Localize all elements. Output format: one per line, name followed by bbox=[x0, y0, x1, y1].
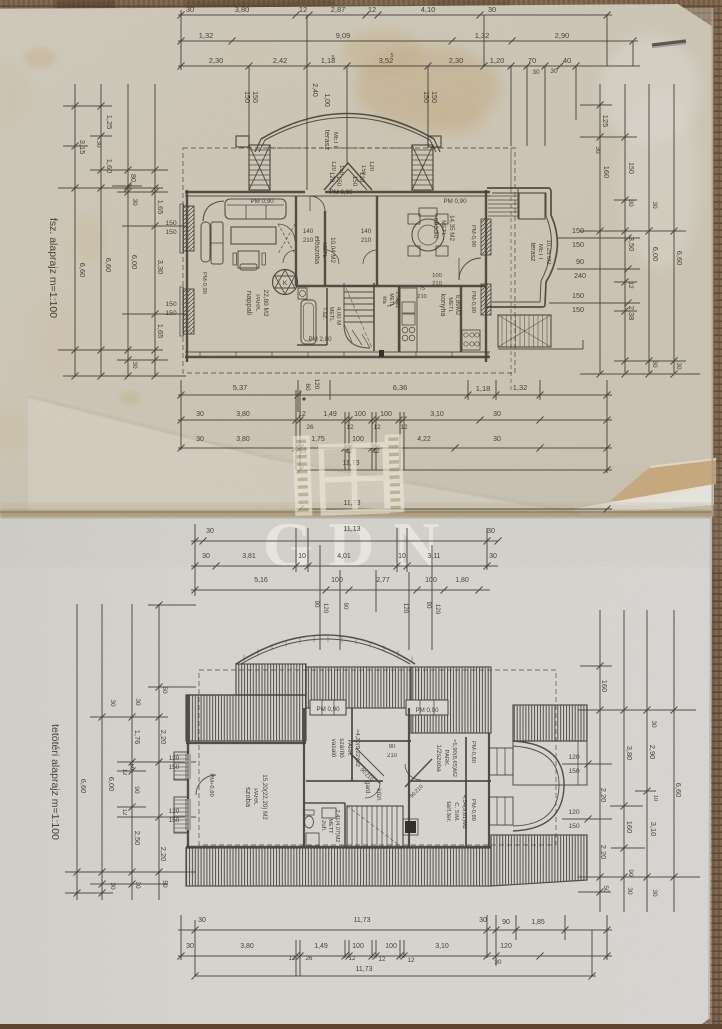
svg-text:1,00: 1,00 bbox=[323, 93, 330, 107]
svg-text:D: D bbox=[328, 509, 374, 580]
svg-text:30: 30 bbox=[198, 917, 206, 924]
svg-text:4,10: 4,10 bbox=[421, 5, 436, 14]
svg-text:METT: METT bbox=[537, 244, 543, 261]
svg-text:2,50: 2,50 bbox=[133, 831, 142, 846]
svg-text:75: 75 bbox=[419, 286, 425, 292]
svg-text:3,30: 3,30 bbox=[156, 260, 165, 275]
svg-text:C. SíM.: C. SíM. bbox=[453, 802, 459, 822]
svg-text:METL: METL bbox=[440, 220, 446, 236]
svg-text:30: 30 bbox=[650, 720, 657, 728]
svg-text:11,73: 11,73 bbox=[354, 917, 371, 924]
svg-text:tart.ter.: tart.ter. bbox=[445, 801, 452, 822]
svg-text:1,20: 1,20 bbox=[490, 56, 505, 65]
svg-text:szárító: szárító bbox=[338, 738, 345, 758]
svg-text:METL: METL bbox=[328, 307, 334, 322]
svg-text:PM-0,80: PM-0,80 bbox=[470, 741, 476, 763]
svg-text:terasz: terasz bbox=[529, 242, 536, 262]
svg-text:PM 2,00: PM 2,00 bbox=[308, 336, 332, 343]
svg-text:PM 0,90: PM 0,90 bbox=[329, 189, 353, 196]
svg-text:210: 210 bbox=[303, 237, 314, 244]
svg-text:1,60: 1,60 bbox=[105, 159, 114, 174]
svg-text:3,10: 3,10 bbox=[435, 943, 449, 950]
svg-text:5,16: 5,16 bbox=[254, 577, 268, 584]
svg-text:150: 150 bbox=[251, 91, 258, 103]
svg-text:120: 120 bbox=[402, 603, 409, 614]
svg-text:K: K bbox=[283, 280, 288, 287]
svg-text:METL: METL bbox=[447, 297, 453, 313]
svg-text:30: 30 bbox=[109, 699, 116, 707]
svg-text:3,15: 3,15 bbox=[78, 140, 87, 155]
svg-text:30: 30 bbox=[675, 362, 682, 370]
svg-text:40: 40 bbox=[563, 56, 571, 65]
svg-text:2,30: 2,30 bbox=[449, 56, 464, 65]
svg-text:f.sz.: f.sz. bbox=[321, 308, 328, 320]
svg-text:2,87: 2,87 bbox=[331, 5, 346, 14]
svg-text:100: 100 bbox=[331, 577, 343, 584]
svg-text:kfa: kfa bbox=[381, 296, 387, 304]
svg-text:tetötéri alaprajz m=1:100: tetötéri alaprajz m=1:100 bbox=[49, 724, 61, 840]
svg-text:közl.: közl. bbox=[375, 788, 382, 802]
svg-text:1,49: 1,49 bbox=[314, 943, 328, 950]
svg-text:PARK.: PARK. bbox=[254, 294, 260, 312]
svg-text:3,80: 3,80 bbox=[236, 411, 250, 418]
svg-text:3,10: 3,10 bbox=[649, 822, 658, 837]
svg-text:1,76: 1,76 bbox=[133, 730, 142, 745]
svg-text:2,40: 2,40 bbox=[311, 83, 318, 97]
svg-text:90: 90 bbox=[627, 869, 634, 877]
svg-text:50: 50 bbox=[161, 686, 168, 694]
svg-text:gard.: gard. bbox=[364, 781, 371, 795]
svg-text:12: 12 bbox=[627, 281, 634, 289]
svg-text:terasz: terasz bbox=[323, 130, 332, 151]
svg-text:100: 100 bbox=[352, 436, 364, 443]
svg-text:210: 210 bbox=[361, 237, 372, 244]
svg-text:6,00: 6,00 bbox=[130, 255, 139, 270]
svg-text:4,22: 4,22 bbox=[417, 436, 431, 443]
svg-text:90: 90 bbox=[502, 919, 510, 926]
svg-text:120: 120 bbox=[313, 379, 320, 390]
svg-text:PM 0,90: PM 0,90 bbox=[415, 707, 439, 714]
svg-text:100: 100 bbox=[432, 273, 442, 279]
svg-text:12: 12 bbox=[373, 424, 381, 431]
svg-text:26: 26 bbox=[306, 955, 313, 962]
svg-text:100: 100 bbox=[354, 411, 366, 418]
svg-text:11,73: 11,73 bbox=[344, 500, 361, 507]
svg-text:150: 150 bbox=[572, 305, 584, 314]
svg-text:120: 120 bbox=[500, 943, 512, 950]
svg-text:30: 30 bbox=[651, 360, 658, 368]
svg-text:90: 90 bbox=[389, 744, 396, 750]
svg-text:120: 120 bbox=[330, 161, 336, 172]
svg-text:30: 30 bbox=[488, 5, 496, 14]
svg-text:2,90: 2,90 bbox=[648, 745, 657, 760]
svg-text:1,18: 1,18 bbox=[476, 384, 491, 393]
svg-text:210: 210 bbox=[387, 753, 398, 759]
svg-text:2,20: 2,20 bbox=[159, 730, 168, 745]
svg-text:12: 12 bbox=[299, 5, 307, 14]
svg-text:30: 30 bbox=[109, 882, 116, 890]
svg-text:90: 90 bbox=[133, 786, 140, 794]
svg-text:22,80 M2: 22,80 M2 bbox=[262, 289, 269, 316]
svg-text:26: 26 bbox=[306, 424, 314, 431]
svg-text:zuh.: zuh. bbox=[320, 820, 327, 832]
svg-text:12: 12 bbox=[379, 956, 386, 963]
svg-text:100: 100 bbox=[425, 577, 437, 584]
svg-text:30: 30 bbox=[532, 69, 540, 76]
svg-text:150: 150 bbox=[335, 176, 342, 187]
svg-text:3,50: 3,50 bbox=[627, 237, 636, 252]
svg-text:6,89M2: 6,89M2 bbox=[454, 295, 461, 316]
svg-text:5: 5 bbox=[390, 53, 393, 59]
svg-text:11,13: 11,13 bbox=[344, 526, 361, 533]
svg-text:140: 140 bbox=[303, 228, 314, 235]
svg-text:1,49: 1,49 bbox=[323, 411, 337, 418]
svg-text:1,32: 1,32 bbox=[199, 31, 214, 40]
svg-text:30: 30 bbox=[627, 199, 634, 207]
svg-text:PM 0,90: PM 0,90 bbox=[250, 198, 274, 205]
svg-text:3,10: 3,10 bbox=[430, 411, 444, 418]
svg-text:80: 80 bbox=[129, 174, 138, 182]
svg-text:30: 30 bbox=[651, 201, 658, 209]
svg-text:30: 30 bbox=[134, 698, 141, 706]
svg-text:160: 160 bbox=[625, 821, 634, 834]
svg-text:4,00 M: 4,00 M bbox=[335, 307, 341, 325]
svg-text:100: 100 bbox=[385, 943, 397, 950]
svg-text:2,20: 2,20 bbox=[159, 847, 168, 862]
svg-text:fsz. alaprajz m=1:100: fsz. alaprajz m=1:100 bbox=[47, 218, 59, 318]
svg-text:5: 5 bbox=[331, 55, 334, 61]
svg-text:6,00: 6,00 bbox=[107, 777, 116, 792]
svg-text:2,90: 2,90 bbox=[555, 31, 570, 40]
svg-text:12: 12 bbox=[121, 809, 127, 816]
svg-text:90: 90 bbox=[576, 257, 584, 266]
svg-text:150: 150 bbox=[165, 229, 177, 236]
svg-text:konyha: konyha bbox=[439, 294, 446, 317]
svg-text:2,41(4,07)M2: 2,41(4,07)M2 bbox=[334, 810, 340, 843]
svg-text:60: 60 bbox=[304, 383, 311, 391]
svg-text:120: 120 bbox=[322, 603, 329, 614]
svg-text:30: 30 bbox=[651, 889, 658, 897]
svg-text:6,60: 6,60 bbox=[79, 779, 88, 794]
svg-text:2,77: 2,77 bbox=[376, 577, 390, 584]
svg-text:2,30: 2,30 bbox=[209, 56, 224, 65]
svg-text:1,32: 1,32 bbox=[475, 31, 490, 40]
svg-text:6,60: 6,60 bbox=[675, 251, 684, 266]
svg-text:30: 30 bbox=[202, 553, 210, 560]
svg-text:120: 120 bbox=[568, 809, 580, 816]
svg-text:160: 160 bbox=[602, 166, 611, 179]
svg-text:9,09: 9,09 bbox=[336, 31, 351, 40]
svg-text:10: 10 bbox=[398, 553, 406, 560]
svg-text:1,85: 1,85 bbox=[531, 919, 545, 926]
svg-text:150: 150 bbox=[243, 91, 250, 103]
svg-text:10,04 M2: 10,04 M2 bbox=[329, 237, 336, 263]
svg-text:3,80: 3,80 bbox=[240, 943, 254, 950]
svg-text:4,01: 4,01 bbox=[337, 553, 351, 560]
svg-text:120: 120 bbox=[328, 172, 335, 183]
svg-text:4,54(9,61)M2: 4,54(9,61)M2 bbox=[461, 795, 467, 829]
svg-text:210: 210 bbox=[432, 281, 442, 287]
svg-text:60: 60 bbox=[128, 764, 134, 771]
svg-text:14,35 M2: 14,35 M2 bbox=[448, 215, 455, 241]
svg-text:6,60: 6,60 bbox=[78, 263, 87, 278]
svg-text:150: 150 bbox=[568, 823, 580, 830]
svg-text:30: 30 bbox=[206, 528, 214, 535]
svg-text:2,42: 2,42 bbox=[273, 56, 288, 65]
svg-text:150: 150 bbox=[422, 91, 429, 103]
svg-text:5,37: 5,37 bbox=[233, 383, 248, 392]
svg-text:30: 30 bbox=[489, 553, 497, 560]
svg-text:15,20(22,20) M2: 15,20(22,20) M2 bbox=[261, 774, 268, 820]
svg-text:12: 12 bbox=[298, 411, 306, 418]
svg-text:30: 30 bbox=[493, 436, 501, 443]
svg-text:140: 140 bbox=[361, 228, 372, 235]
svg-text:6,60: 6,60 bbox=[104, 258, 113, 273]
svg-text:PM 0,90: PM 0,90 bbox=[316, 706, 340, 713]
svg-text:6,60: 6,60 bbox=[674, 783, 683, 798]
svg-text:150: 150 bbox=[165, 220, 177, 227]
svg-text:1,75: 1,75 bbox=[311, 436, 325, 443]
svg-text:50: 50 bbox=[161, 880, 168, 888]
svg-text:1,25: 1,25 bbox=[105, 115, 114, 130]
svg-text:150: 150 bbox=[430, 91, 437, 103]
svg-text:10: 10 bbox=[298, 553, 306, 560]
svg-text:150: 150 bbox=[572, 226, 584, 235]
svg-text:150: 150 bbox=[338, 165, 344, 176]
svg-text:30: 30 bbox=[550, 68, 558, 75]
svg-text:150: 150 bbox=[572, 291, 584, 300]
svg-text:3,11: 3,11 bbox=[427, 553, 440, 560]
svg-text:elöszoba: elöszoba bbox=[313, 236, 320, 264]
svg-text:METT: METT bbox=[327, 819, 333, 835]
svg-text:12: 12 bbox=[346, 424, 354, 431]
svg-text:30: 30 bbox=[493, 411, 501, 418]
svg-text:3,80: 3,80 bbox=[235, 5, 250, 14]
svg-text:125: 125 bbox=[601, 115, 610, 128]
svg-text:120: 120 bbox=[368, 161, 374, 172]
svg-text:3,81: 3,81 bbox=[242, 553, 256, 560]
svg-text:ebédlö: ebédlö bbox=[432, 217, 439, 238]
svg-text:10: 10 bbox=[652, 795, 658, 802]
svg-text:PM-0,90: PM-0,90 bbox=[470, 291, 476, 313]
svg-text:150: 150 bbox=[165, 310, 177, 317]
svg-text:90: 90 bbox=[313, 601, 320, 608]
svg-text:30: 30 bbox=[186, 5, 194, 14]
svg-text:12: 12 bbox=[408, 957, 415, 964]
svg-text:30: 30 bbox=[487, 528, 495, 535]
svg-text:30: 30 bbox=[626, 887, 633, 895]
svg-text:1,65: 1,65 bbox=[156, 324, 165, 339]
svg-text:150: 150 bbox=[165, 301, 177, 308]
svg-text:2,20: 2,20 bbox=[599, 845, 608, 860]
svg-text:210: 210 bbox=[417, 294, 426, 300]
svg-text:PM 0,90: PM 0,90 bbox=[443, 198, 467, 205]
svg-text:PARK.: PARK. bbox=[443, 750, 449, 767]
svg-text:vasaló: vasaló bbox=[330, 739, 337, 758]
svg-text:PARK.: PARK. bbox=[252, 788, 258, 806]
svg-text:30: 30 bbox=[196, 436, 204, 443]
svg-text:12: 12 bbox=[368, 5, 376, 14]
svg-text:12: 12 bbox=[121, 769, 127, 776]
svg-text:PM-0,90: PM-0,90 bbox=[201, 272, 207, 294]
svg-text:3,80: 3,80 bbox=[236, 436, 250, 443]
svg-text:100: 100 bbox=[352, 943, 364, 950]
svg-text:120: 120 bbox=[434, 604, 441, 615]
svg-text:30: 30 bbox=[594, 146, 601, 154]
svg-text:=5,90(8,65)M2: =5,90(8,65)M2 bbox=[451, 739, 457, 777]
svg-text:1,32: 1,32 bbox=[513, 383, 528, 392]
svg-text:METL: METL bbox=[388, 293, 394, 307]
svg-text:30: 30 bbox=[131, 198, 138, 206]
svg-text:3,80: 3,80 bbox=[625, 746, 634, 761]
svg-text:150: 150 bbox=[572, 240, 584, 249]
svg-text:150: 150 bbox=[360, 165, 366, 176]
svg-text:30: 30 bbox=[186, 943, 194, 950]
svg-text:6,36: 6,36 bbox=[393, 383, 408, 392]
svg-text:150: 150 bbox=[627, 162, 634, 174]
svg-text:6,00: 6,00 bbox=[651, 247, 660, 262]
svg-text:2,38: 2,38 bbox=[627, 306, 636, 321]
svg-text:1,80: 1,80 bbox=[455, 577, 469, 584]
svg-text:160: 160 bbox=[600, 680, 609, 693]
svg-text:12: 12 bbox=[289, 955, 296, 962]
svg-text:12: 12 bbox=[349, 955, 356, 962]
svg-text:PM+0,80: PM+0,80 bbox=[208, 773, 214, 796]
svg-text:240: 240 bbox=[574, 271, 586, 280]
svg-text:50: 50 bbox=[602, 885, 609, 893]
svg-text:30: 30 bbox=[131, 361, 138, 369]
svg-text:2,20: 2,20 bbox=[599, 788, 608, 803]
svg-text:70: 70 bbox=[528, 56, 536, 65]
svg-text:30: 30 bbox=[196, 411, 204, 418]
svg-text:1/2szoba: 1/2szoba bbox=[435, 744, 442, 772]
svg-text:szoba: szoba bbox=[244, 787, 253, 808]
svg-text:METT: METT bbox=[332, 132, 338, 149]
svg-text:nappali: nappali bbox=[245, 291, 254, 316]
svg-text:11,73: 11,73 bbox=[356, 966, 373, 973]
svg-text:30: 30 bbox=[134, 881, 141, 889]
svg-text:100: 100 bbox=[380, 411, 392, 418]
svg-text:PM-0,80: PM-0,80 bbox=[470, 799, 476, 821]
svg-text:30: 30 bbox=[95, 140, 102, 148]
svg-text:150: 150 bbox=[351, 176, 358, 187]
svg-text:PM-0,90: PM-0,90 bbox=[470, 225, 476, 247]
svg-text:1,65: 1,65 bbox=[156, 200, 165, 215]
svg-text:90: 90 bbox=[425, 602, 432, 609]
svg-text:10,25 M2: 10,25 M2 bbox=[545, 239, 551, 265]
svg-text:30: 30 bbox=[479, 917, 487, 924]
svg-text:90: 90 bbox=[342, 603, 349, 610]
